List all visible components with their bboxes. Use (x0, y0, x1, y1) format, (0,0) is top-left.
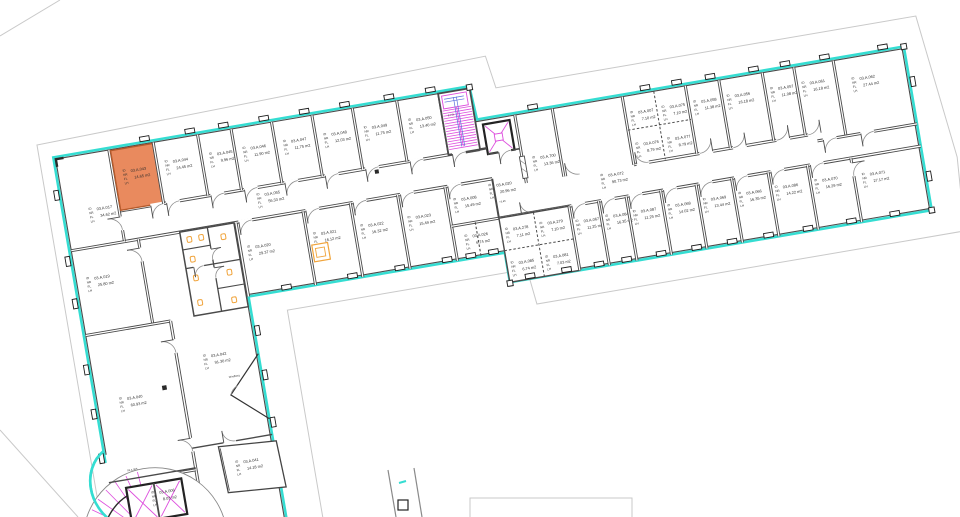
svg-text:LH: LH (607, 226, 611, 231)
svg-text:LH: LH (547, 267, 551, 272)
svg-text:LH: LH (409, 227, 413, 232)
svg-text:LH: LH (816, 190, 820, 195)
svg-text:LH: LH (853, 89, 857, 94)
svg-text:LH: LH (635, 221, 639, 226)
svg-text:LH: LH (237, 472, 241, 477)
svg-text:LH: LH (534, 168, 538, 173)
svg-text:LH: LH (507, 239, 511, 244)
svg-text:LH: LH (740, 203, 744, 208)
svg-text:LH: LH (362, 236, 366, 241)
svg-text:LH: LH (88, 288, 92, 293)
svg-text:LH: LH (669, 216, 673, 221)
svg-text:LH: LH (602, 185, 606, 190)
svg-text:LH: LH (466, 246, 470, 251)
svg-text:LH: LH (772, 99, 776, 104)
svg-text:LH: LH (153, 503, 157, 508)
svg-text:LH: LH (249, 257, 253, 262)
svg-text:LH: LH (490, 195, 494, 200)
svg-text:LH: LH (166, 172, 170, 177)
svg-text:LH: LH (124, 181, 128, 186)
svg-text:LH: LH (728, 106, 732, 111)
svg-text:LH: LH (637, 154, 641, 159)
svg-text:LH: LH (211, 164, 215, 169)
svg-text:LH: LH (285, 151, 289, 156)
svg-text:LH: LH (632, 122, 636, 127)
svg-text:LH: LH (669, 149, 673, 154)
svg-text:LH: LH (577, 231, 581, 236)
svg-text:LH: LH (455, 210, 459, 215)
svg-text:LH: LH (90, 219, 94, 224)
svg-text:LH: LH (695, 112, 699, 117)
svg-text:LH: LH (325, 144, 329, 149)
svg-text:LH: LH (512, 273, 516, 278)
svg-text:LH: LH (663, 117, 667, 122)
svg-text:LH: LH (541, 233, 545, 238)
svg-text:LH: LH (258, 205, 262, 210)
svg-text:LH: LH (704, 209, 708, 214)
svg-text:LH: LH (205, 366, 209, 371)
svg-text:LH: LH (803, 93, 807, 98)
svg-text:LH: LH (410, 130, 414, 135)
svg-text:LH: LH (121, 409, 125, 414)
svg-text:LH: LH (776, 197, 780, 202)
svg-text:LH: LH (366, 138, 370, 143)
svg-text:LH: LH (864, 184, 868, 189)
svg-text:LH: LH (244, 158, 248, 163)
